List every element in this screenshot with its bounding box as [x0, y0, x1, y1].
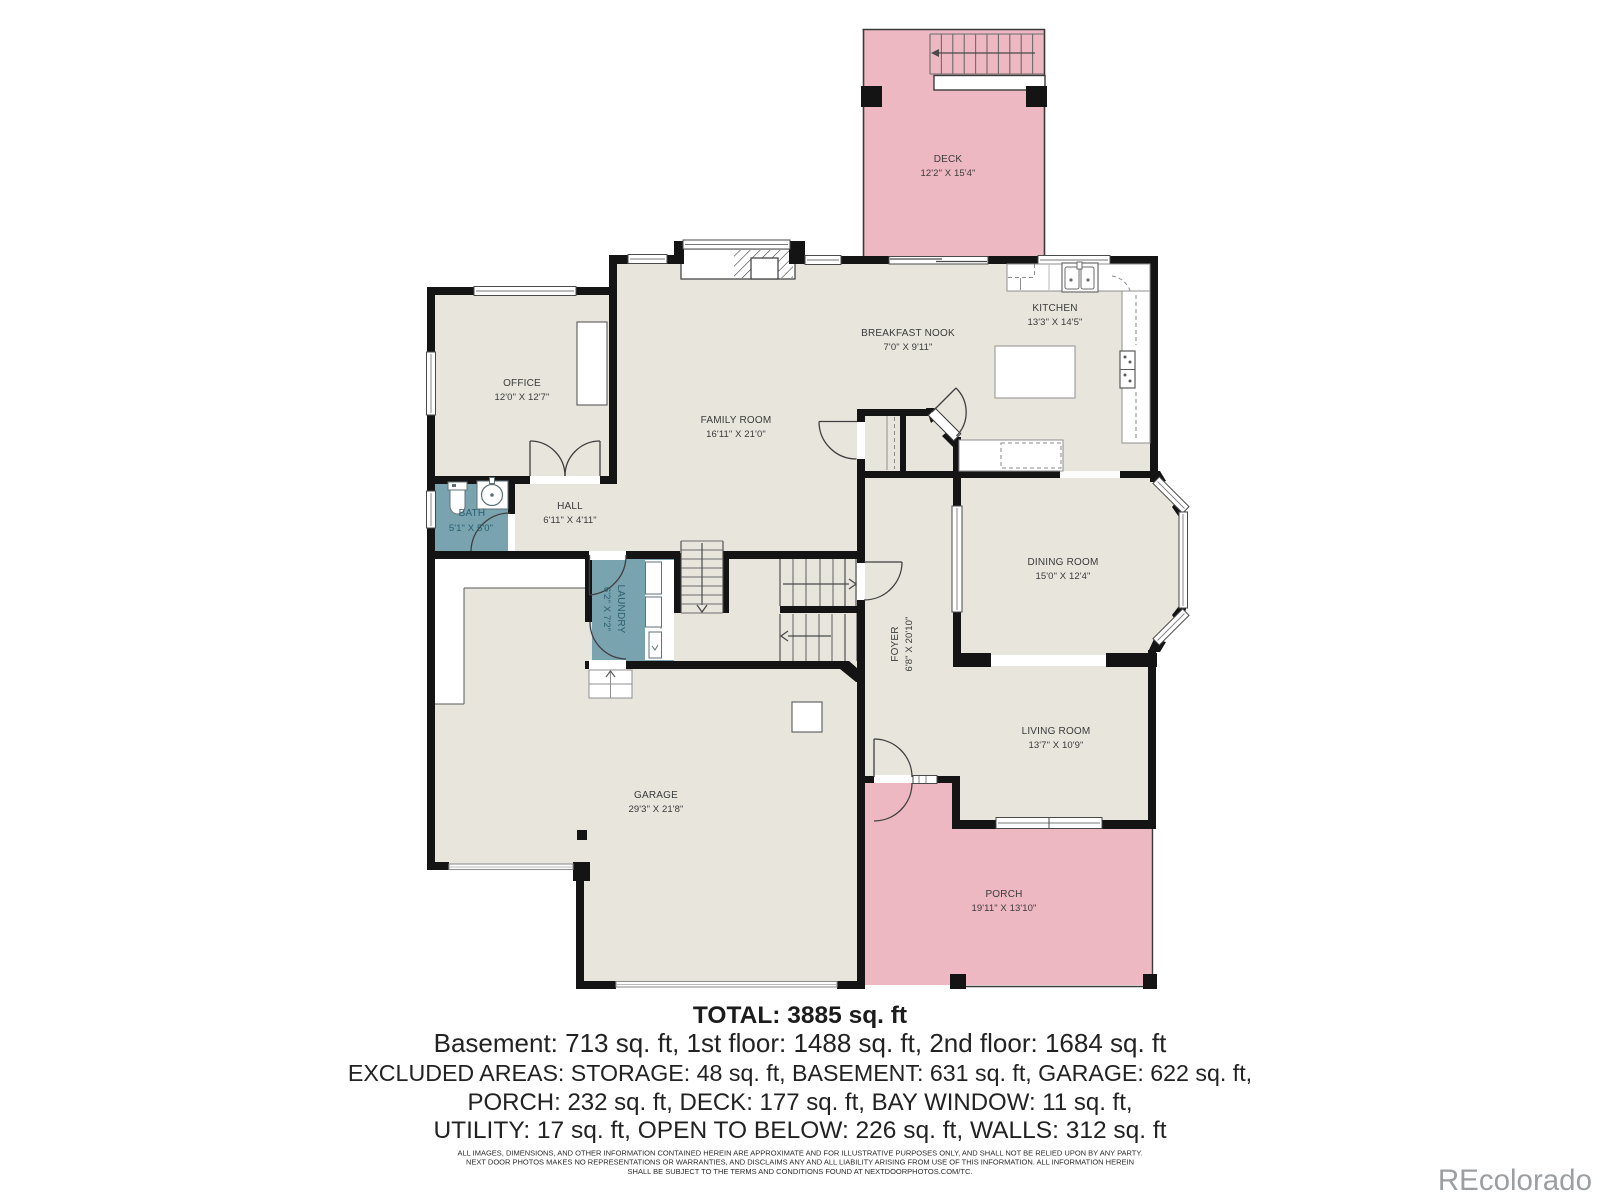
svg-text:5'1" X 5'0": 5'1" X 5'0" [449, 523, 493, 534]
svg-text:12'2" X 15'4": 12'2" X 15'4" [921, 168, 976, 179]
svg-text:6'2" X 7'2": 6'2" X 7'2" [601, 587, 612, 631]
svg-text:NEXT DOOR PHOTOS MAKES NO REPR: NEXT DOOR PHOTOS MAKES NO REPRESENTATION… [466, 1158, 1134, 1167]
svg-text:BREAKFAST NOOK: BREAKFAST NOOK [861, 328, 955, 339]
svg-text:OFFICE: OFFICE [503, 378, 541, 389]
svg-text:UTILITY: 17 sq. ft, OPEN TO BE: UTILITY: 17 sq. ft, OPEN TO BELOW: 226 s… [433, 1117, 1166, 1144]
svg-text:FAMILY ROOM: FAMILY ROOM [701, 415, 772, 426]
svg-text:15'0" X 12'4": 15'0" X 12'4" [1036, 571, 1091, 582]
svg-text:GARAGE: GARAGE [634, 790, 678, 801]
svg-text:HALL: HALL [557, 501, 583, 512]
svg-text:12'0" X 12'7": 12'0" X 12'7" [495, 392, 550, 403]
svg-text:FOYER: FOYER [890, 626, 901, 661]
svg-text:PORCH: PORCH [985, 889, 1022, 900]
svg-text:PORCH: 232 sq. ft, DECK: 177 s: PORCH: 232 sq. ft, DECK: 177 sq. ft, BAY… [467, 1089, 1132, 1116]
svg-text:13'3" X 14'5": 13'3" X 14'5" [1028, 317, 1083, 328]
svg-text:DECK: DECK [934, 154, 963, 165]
svg-text:SHALL BE SUBJECT TO THE TERMS: SHALL BE SUBJECT TO THE TERMS AND CONDIT… [628, 1167, 973, 1176]
svg-text:TOTAL: 3885 sq. ft: TOTAL: 3885 sq. ft [693, 1002, 907, 1029]
svg-text:13'7" X 10'9": 13'7" X 10'9" [1029, 740, 1084, 751]
svg-text:Basement: 713 sq. ft, 1st floo: Basement: 713 sq. ft, 1st floor: 1488 sq… [434, 1028, 1168, 1058]
svg-text:LIVING ROOM: LIVING ROOM [1022, 726, 1091, 737]
svg-text:19'11" X 13'10": 19'11" X 13'10" [971, 903, 1036, 914]
svg-text:REcolorado: REcolorado [1438, 1164, 1592, 1197]
svg-text:ALL IMAGES, DIMENSIONS, AND OT: ALL IMAGES, DIMENSIONS, AND OTHER INFORM… [457, 1149, 1142, 1158]
svg-text:LAUNDRY: LAUNDRY [615, 584, 626, 633]
svg-text:7'0" X 9'11": 7'0" X 9'11" [884, 342, 933, 353]
svg-text:EXCLUDED AREAS: STORAGE: 48 sq: EXCLUDED AREAS: STORAGE: 48 sq. ft, BASE… [348, 1060, 1252, 1086]
svg-text:BATH: BATH [459, 508, 486, 519]
svg-text:16'11" X 21'0": 16'11" X 21'0" [706, 429, 766, 440]
svg-text:6'8" X 20'10": 6'8" X 20'10" [904, 617, 915, 672]
svg-text:29'3" X 21'8": 29'3" X 21'8" [629, 804, 684, 815]
svg-text:DINING ROOM: DINING ROOM [1027, 557, 1098, 568]
svg-text:KITCHEN: KITCHEN [1032, 303, 1077, 314]
svg-text:6'11" X 4'11": 6'11" X 4'11" [543, 515, 597, 526]
